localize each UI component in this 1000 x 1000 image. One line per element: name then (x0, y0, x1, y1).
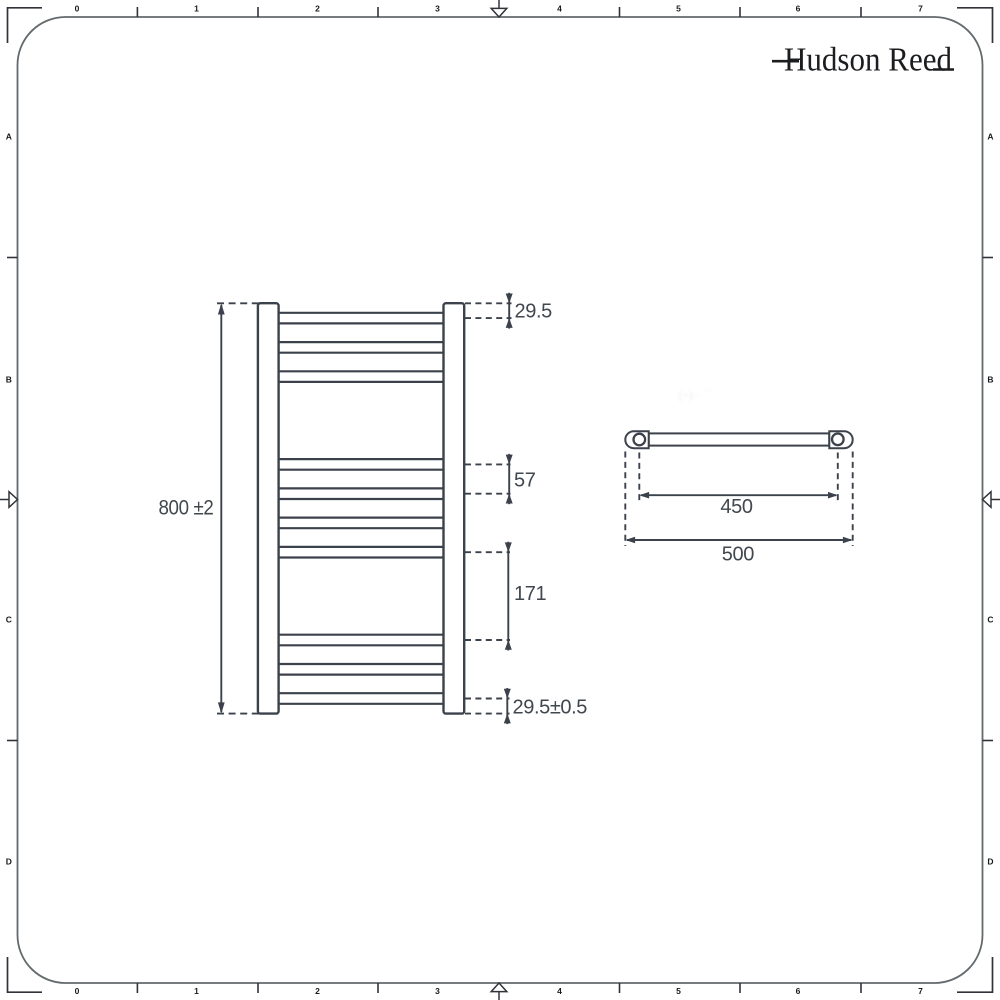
svg-text:171: 171 (514, 583, 546, 605)
svg-text:(−)·⋅ ¯: (−)·⋅ ¯ (678, 388, 711, 402)
svg-text:800 ±2: 800 ±2 (159, 497, 214, 520)
svg-text:6: 6 (796, 986, 801, 996)
svg-text:0: 0 (75, 4, 80, 14)
svg-text:D: D (987, 857, 993, 867)
svg-text:Hudson Reed: Hudson Reed (784, 42, 952, 79)
svg-text:6: 6 (796, 4, 801, 14)
svg-text:1: 1 (194, 4, 199, 14)
svg-text:450: 450 (720, 496, 752, 518)
svg-text:B: B (6, 375, 12, 385)
svg-text:5: 5 (676, 4, 681, 14)
svg-text:C: C (987, 615, 993, 625)
svg-text:2: 2 (315, 986, 320, 996)
svg-text:2: 2 (315, 4, 320, 14)
svg-text:D: D (6, 857, 12, 867)
svg-text:7: 7 (918, 4, 923, 14)
svg-text:7: 7 (918, 986, 923, 996)
svg-text:C: C (6, 615, 12, 625)
svg-text:A: A (987, 132, 993, 142)
svg-text:A: A (6, 132, 12, 142)
svg-text:3: 3 (435, 986, 440, 996)
svg-text:57: 57 (514, 470, 536, 492)
svg-text:29.5±0.5: 29.5±0.5 (513, 697, 588, 719)
svg-text:500: 500 (722, 544, 754, 566)
svg-text:0: 0 (75, 986, 80, 996)
svg-text:4: 4 (557, 986, 562, 996)
svg-text:5: 5 (676, 986, 681, 996)
svg-text:3: 3 (435, 4, 440, 14)
svg-text:4: 4 (557, 4, 562, 14)
svg-text:B: B (987, 375, 993, 385)
svg-text:29.5: 29.5 (515, 301, 553, 323)
svg-text:1: 1 (194, 986, 199, 996)
